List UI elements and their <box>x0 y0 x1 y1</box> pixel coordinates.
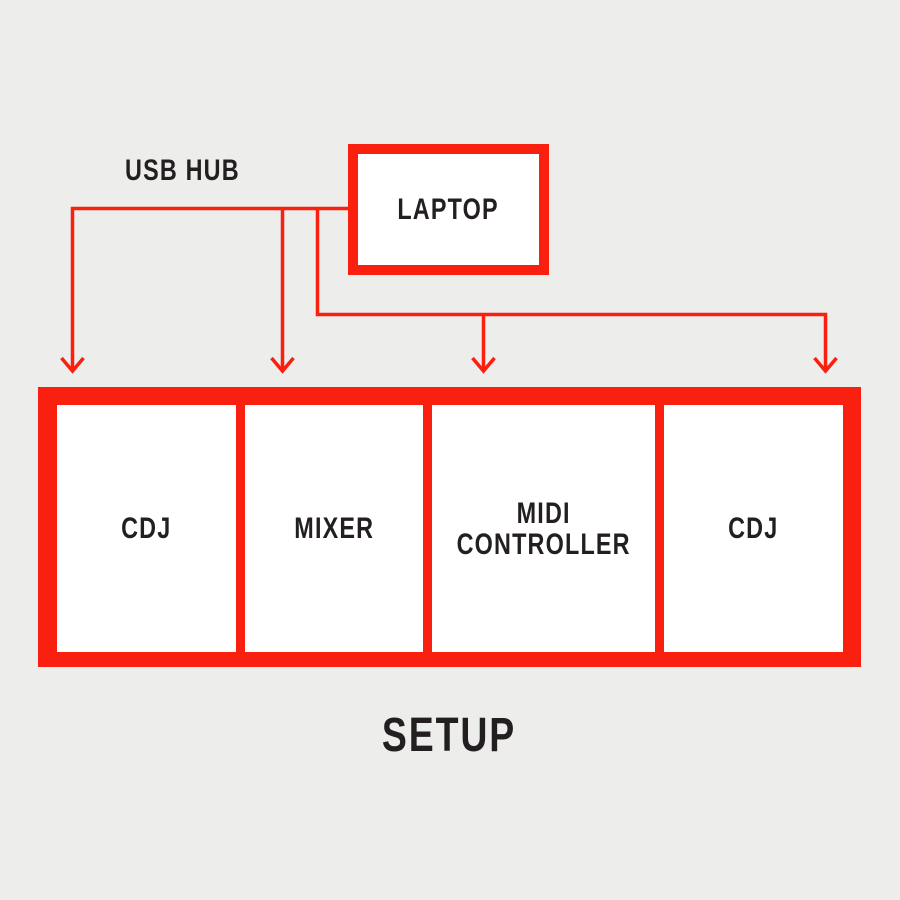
device-rack: CDJ MIXER MIDI CONTROLLER CDJ <box>38 387 861 667</box>
laptop-label: LAPTOP <box>398 195 500 225</box>
connector-hub-to-cdj-left <box>73 209 349 371</box>
diagram-canvas: USB HUB LAPTOP CDJ MIXER MIDI CONTROLLER… <box>0 0 900 900</box>
device-box-cdj-left: CDJ <box>57 405 236 652</box>
device-box-cdj-right: CDJ <box>664 405 843 652</box>
device-label-midi-controller: MIDI CONTROLLER <box>457 498 631 560</box>
diagram-title-text: SETUP <box>382 712 516 760</box>
device-box-mixer: MIXER <box>245 405 424 652</box>
device-label-mixer: MIXER <box>294 513 374 544</box>
arrowhead-mixer <box>272 358 294 371</box>
usb-hub-label-text: USB HUB <box>125 156 240 186</box>
device-label-cdj-left: CDJ <box>121 513 171 544</box>
device-label-cdj-right: CDJ <box>729 513 779 544</box>
arrowhead-midi <box>473 358 495 371</box>
diagram-title: SETUP <box>0 712 899 760</box>
laptop-node: LAPTOP <box>348 144 549 275</box>
arrowhead-cdj-right <box>815 358 837 371</box>
device-box-midi-controller: MIDI CONTROLLER <box>432 405 655 652</box>
usb-hub-label: USB HUB <box>125 156 272 186</box>
arrowhead-cdj-left <box>62 358 84 371</box>
